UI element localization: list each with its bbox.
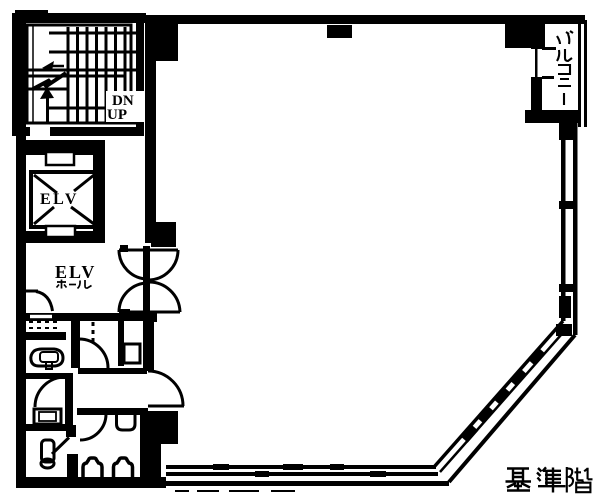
svg-text:ELV: ELV [55,262,96,282]
svg-text:ELV: ELV [40,191,79,208]
svg-text:UP: UP [107,107,127,123]
